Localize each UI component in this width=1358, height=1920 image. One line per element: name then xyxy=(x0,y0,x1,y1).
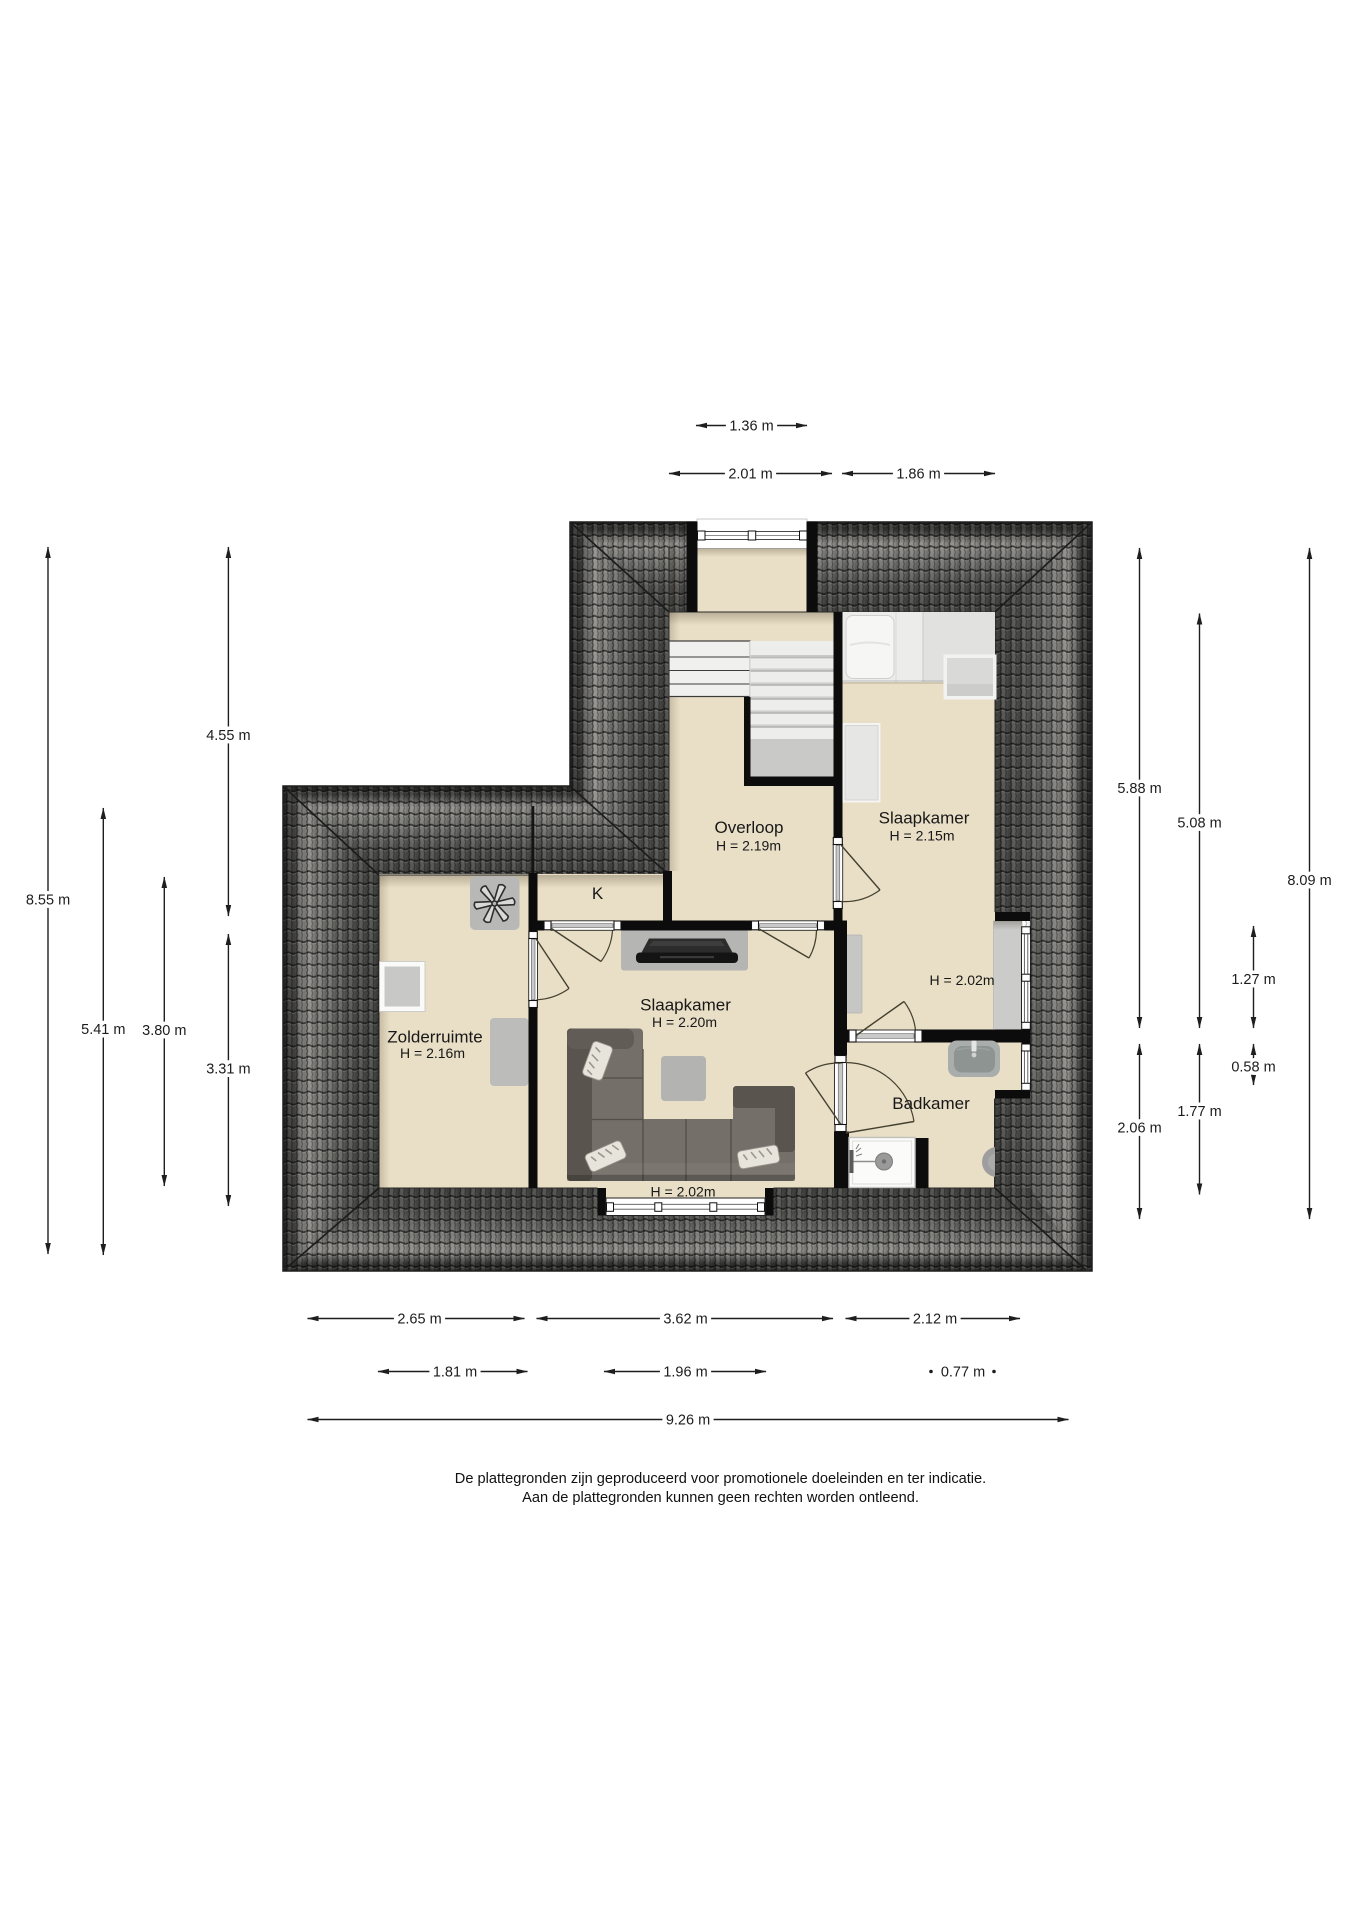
svg-text:H = 2.16m: H = 2.16m xyxy=(400,1045,465,1061)
svg-text:2.01 m: 2.01 m xyxy=(728,467,772,483)
svg-text:2.06 m: 2.06 m xyxy=(1117,1121,1161,1137)
svg-text:3.80 m: 3.80 m xyxy=(142,1023,186,1039)
svg-text:Aan de plattegronden kunnen ge: Aan de plattegronden kunnen geen rechten… xyxy=(522,1490,919,1506)
svg-text:H = 2.02m: H = 2.02m xyxy=(651,1184,716,1200)
svg-text:2.12 m: 2.12 m xyxy=(913,1312,957,1328)
svg-text:Badkamer: Badkamer xyxy=(892,1094,970,1113)
svg-text:2.65 m: 2.65 m xyxy=(397,1312,441,1328)
svg-text:3.62 m: 3.62 m xyxy=(663,1312,707,1328)
svg-text:5.08 m: 5.08 m xyxy=(1177,816,1221,832)
svg-text:1.77 m: 1.77 m xyxy=(1177,1104,1221,1120)
svg-text:1.81 m: 1.81 m xyxy=(433,1365,477,1381)
svg-text:1.36 m: 1.36 m xyxy=(729,419,773,435)
svg-text:1.86 m: 1.86 m xyxy=(896,467,940,483)
svg-text:Overloop: Overloop xyxy=(715,818,784,837)
svg-text:0.58 m: 0.58 m xyxy=(1231,1060,1275,1076)
svg-text:3.31 m: 3.31 m xyxy=(206,1062,250,1078)
svg-text:Slaapkamer: Slaapkamer xyxy=(879,809,970,828)
svg-text:H = 2.15m: H = 2.15m xyxy=(890,828,955,844)
svg-text:0.77 m: 0.77 m xyxy=(941,1365,985,1381)
svg-text:H = 2.20m: H = 2.20m xyxy=(652,1014,717,1030)
svg-text:De plattegronden zijn geproduc: De plattegronden zijn geproduceerd voor … xyxy=(455,1471,986,1487)
svg-text:Zolderruimte: Zolderruimte xyxy=(387,1028,482,1047)
svg-text:5.88 m: 5.88 m xyxy=(1117,781,1161,797)
svg-text:1.27 m: 1.27 m xyxy=(1231,972,1275,988)
svg-text:5.41 m: 5.41 m xyxy=(81,1022,125,1038)
svg-text:8.55 m: 8.55 m xyxy=(26,893,70,909)
svg-text:Slaapkamer: Slaapkamer xyxy=(640,996,731,1015)
svg-text:9.26 m: 9.26 m xyxy=(666,1413,710,1429)
svg-text:1.96 m: 1.96 m xyxy=(663,1365,707,1381)
svg-text:8.09 m: 8.09 m xyxy=(1287,873,1331,889)
svg-text:H = 2.19m: H = 2.19m xyxy=(716,838,781,854)
svg-text:H = 2.02m: H = 2.02m xyxy=(930,972,995,988)
svg-text:K: K xyxy=(592,884,604,903)
svg-text:4.55 m: 4.55 m xyxy=(206,728,250,744)
